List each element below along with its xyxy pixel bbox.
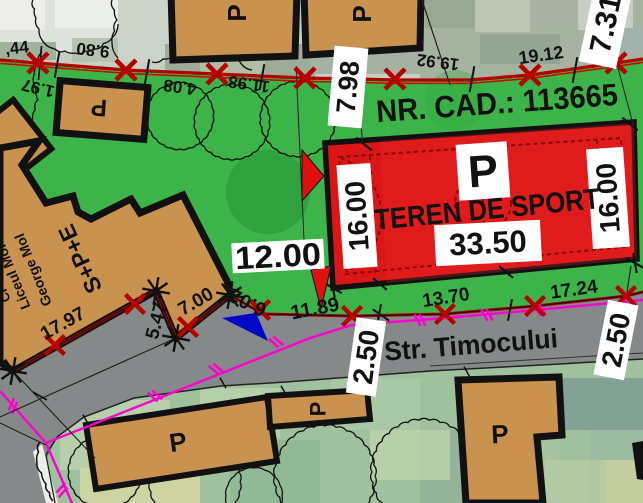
svg-text:9.80: 9.80 xyxy=(75,39,110,62)
svg-text:P: P xyxy=(491,419,510,450)
svg-text:P: P xyxy=(306,402,331,417)
svg-text:12.00: 12.00 xyxy=(234,236,322,276)
svg-text:P: P xyxy=(347,5,377,22)
svg-text:7.98: 7.98 xyxy=(331,60,365,115)
svg-text:,44: ,44 xyxy=(4,37,30,58)
svg-text:P: P xyxy=(222,4,252,21)
svg-text:33.50: 33.50 xyxy=(448,223,527,262)
svg-text:16.00: 16.00 xyxy=(339,180,375,252)
svg-text:P: P xyxy=(466,145,500,198)
svg-text:P: P xyxy=(90,93,108,121)
